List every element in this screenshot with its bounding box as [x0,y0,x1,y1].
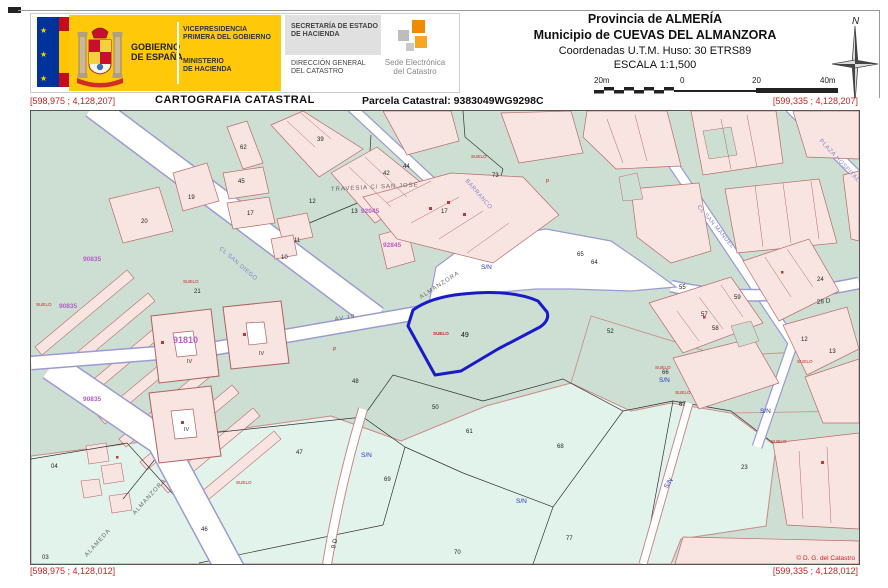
parcel-number: 68 [557,444,564,450]
parcel-number: 21 [194,289,201,295]
copyright-label: © D. G. del Catastro [796,554,855,562]
coord-top-left: [598,975 ; 4,128,207] [30,96,115,106]
parcel-number: 13 [351,209,358,215]
parcel-number: 03 [42,555,49,561]
landuse-label: SUELO [797,359,813,364]
parcel-number: 77 [566,536,573,542]
cadastral-print-page: { "header": { "logo": { "gob1": "GOBIERN… [0,0,888,588]
sn-label: S/N [516,498,527,505]
page-title: CARTOGRAFIA CATASTRAL [155,94,315,106]
parcel-number: 19 [188,195,195,201]
eu-spain-flag-icon: ★ ★ ★ [37,17,69,87]
coord-bottom-left: [598,975 ; 4,128,012] [30,566,115,576]
parcel-number: 48 [352,379,359,385]
parcel-number: 73 [492,173,499,179]
parcel-number: 11 [294,238,301,244]
parcel-number: 50 [432,405,439,411]
scale-label-20m: 20m [594,76,610,85]
parcel-number: 17 [441,209,448,215]
map-frame: TRAVESIA C/ SAN JOSE CL SAN DIEGO ALMANZ… [30,110,860,565]
sn-label: S/N [481,264,492,271]
svg-text:★: ★ [40,26,47,35]
spain-coat-of-arms-icon [75,18,125,88]
parcel-number: 44 [403,164,410,170]
coord-top-right: [599,335 ; 4,128,207] [773,96,858,106]
parcel-number: 52 [607,329,614,335]
selected-parcel-landuse: SUELO [433,331,449,336]
svg-text:★: ★ [40,74,47,83]
parcel-number: 17 [247,211,254,217]
parcel-number: 12 [801,337,808,343]
coord-bottom-right: [599,335 ; 4,128,012] [773,566,858,576]
parcel-number: 23 [741,465,748,471]
zone-code-label: 90835 [83,396,101,403]
municipio-label: Municipio de CUEVAS DEL ALMANZORA [460,28,850,42]
parcel-number: 57 [701,312,708,318]
scale-label-0: 0 [680,76,684,85]
landuse-label: SUELO [36,302,52,307]
zone-code-label: 92845 [383,242,401,249]
parcel-number: 65 [577,252,584,258]
parcel-number: 04 [51,464,58,470]
parcel-number: 47 [296,450,303,456]
parcel-number: 62 [240,145,247,151]
building-storeys-label: IV [259,351,265,357]
parcel-number: 45 [238,179,245,185]
selected-parcel-number: 49 [461,332,469,339]
parcel-number: 20 [141,219,148,225]
vicepresidencia-label: VICEPRESIDENCIA PRIMERA DEL GOBIERNO [183,26,279,42]
svg-text:★: ★ [40,50,47,59]
utm-label: Coordenadas U.T.M. Huso: 30 ETRS89 [460,45,850,57]
sn-label: S/N [760,408,771,415]
sn-label: S/N [659,377,670,384]
parcel-number: 12 [309,199,316,205]
landuse-label: SUELO [675,390,691,395]
top-rule [18,10,880,11]
parcel-number: 58 [712,326,719,332]
scale-label-20: 20 [752,76,761,85]
building-storeys-label: IV [184,427,190,433]
secretaria-label: SECRETARÍA DE ESTADO DE HACIENDA [291,23,379,39]
landuse-label: SUELO [655,365,671,370]
svg-text:N: N [852,16,860,27]
escala-label: ESCALA 1:1,500 [460,59,850,71]
sede-electronica-label: Sede Electrónica del Catastro [381,58,449,76]
zone-code-label: 91810 [173,335,198,345]
parcel-number: 39 [317,137,324,143]
parcel-number: 24 [817,277,824,283]
province-label: Provincia de ALMERÍA [460,12,850,26]
sede-electronica-icon [397,20,429,54]
parcel-number: 70 [454,550,461,556]
province-header: Provincia de ALMERÍA Municipio de CUEVAS… [460,12,850,71]
building-storeys-label: IV [187,359,193,365]
north-arrow-icon: N [828,12,880,98]
secretaria-box: SECRETARÍA DE ESTADO DE HACIENDA [285,15,381,55]
parcel-number: 59 [734,295,741,301]
landuse-label: SUELO [471,154,487,159]
parcel-number: 55 [679,285,686,291]
parcel-number: 64 [591,260,598,266]
parcel-number: 67 [679,402,686,408]
logo-block: ★ ★ ★ GOBIERNO DE ESPAÑA VICEPRESIDENCIA… [30,13,460,93]
zone-code-label: 90835 [83,256,101,263]
north-arrow: N [828,12,880,98]
landuse-label: SUELO [236,480,252,485]
zone-code-label: 92045 [361,208,379,215]
parcel-number: 61 [466,429,473,435]
landuse-label: SUELO [183,279,199,284]
parcel-number: 42 [383,171,390,177]
parcel-number: 69 [384,477,391,483]
cadastral-map[interactable]: TRAVESIA C/ SAN JOSE CL SAN DIEGO ALMANZ… [31,111,859,564]
parcel-number: 46 [201,527,208,533]
ministerio-label: MINISTERIO DE HACIENDA [183,58,279,74]
scale-bar: 20m 0 20 40m [592,76,848,96]
direccion-label: DIRECCIÓN GENERAL DEL CATASTRO [291,60,381,76]
parcel-number: 66 [662,370,669,376]
logo-divider [177,22,179,84]
landuse-label: SUELO [771,439,787,444]
zone-code-label: 90835 [59,303,77,310]
parcel-number: 13 [829,349,836,355]
parcel-reference: Parcela Catastral: 9383049WG9298C [362,95,544,107]
parcel-number: 10 [281,255,288,261]
road-code-label: 28 D [816,298,831,306]
scale-bar-graphic [592,86,848,96]
sn-label: S/N [361,452,372,459]
